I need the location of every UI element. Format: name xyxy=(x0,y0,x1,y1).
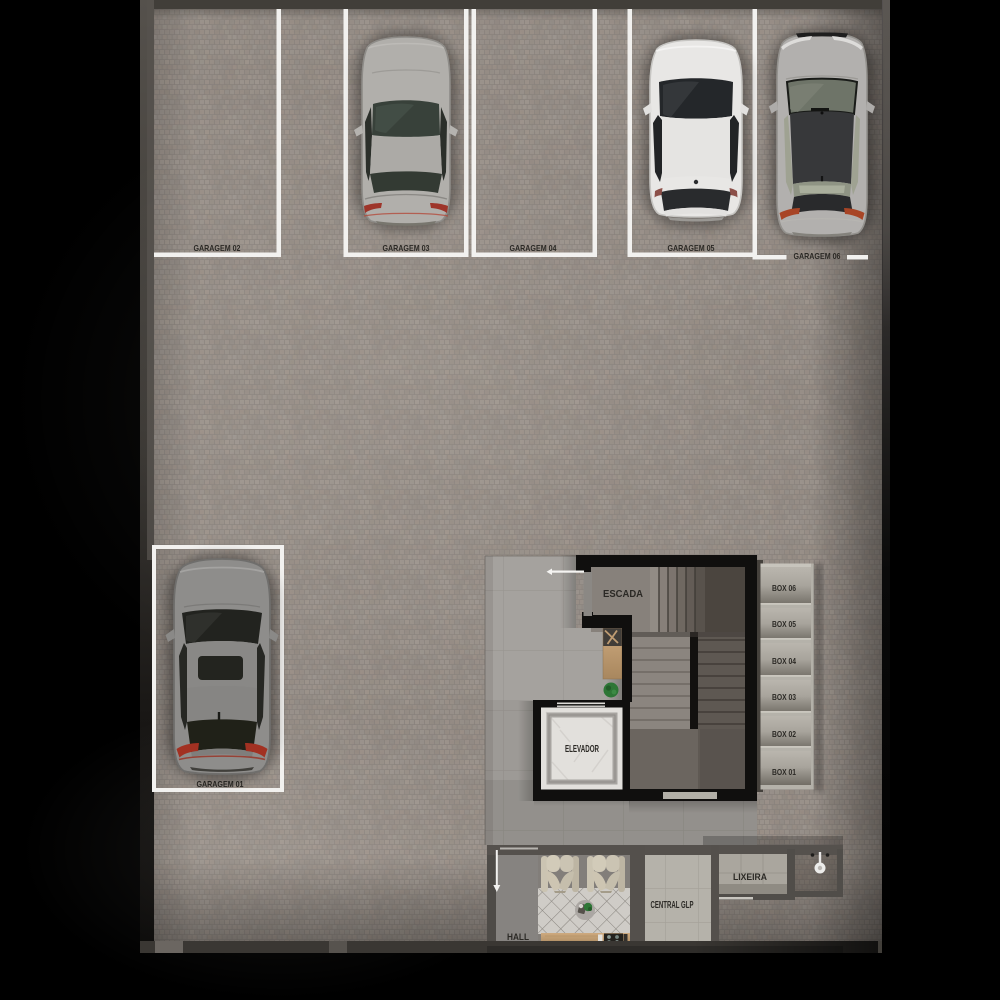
svg-text:BOX 06: BOX 06 xyxy=(772,584,796,593)
svg-text:HALL: HALL xyxy=(507,932,529,942)
svg-text:BOX 01: BOX 01 xyxy=(772,768,796,777)
svg-text:GARAGEM 06: GARAGEM 06 xyxy=(794,251,841,261)
svg-text:GARAGEM 02: GARAGEM 02 xyxy=(194,243,241,253)
svg-text:GARAGEM 03: GARAGEM 03 xyxy=(383,243,430,253)
svg-text:ELEVADOR: ELEVADOR xyxy=(565,744,599,755)
svg-text:LIXEIRA: LIXEIRA xyxy=(733,872,767,882)
svg-text:GARAGEM 04: GARAGEM 04 xyxy=(510,243,557,253)
svg-text:BOX 03: BOX 03 xyxy=(772,693,796,702)
svg-text:BOX 05: BOX 05 xyxy=(772,620,796,629)
svg-text:BOX 02: BOX 02 xyxy=(772,730,796,739)
svg-text:BOX 04: BOX 04 xyxy=(772,657,796,666)
svg-text:CENTRAL GLP: CENTRAL GLP xyxy=(651,900,694,911)
svg-text:ESCADA: ESCADA xyxy=(603,589,643,600)
svg-text:GARAGEM 05: GARAGEM 05 xyxy=(668,243,715,253)
